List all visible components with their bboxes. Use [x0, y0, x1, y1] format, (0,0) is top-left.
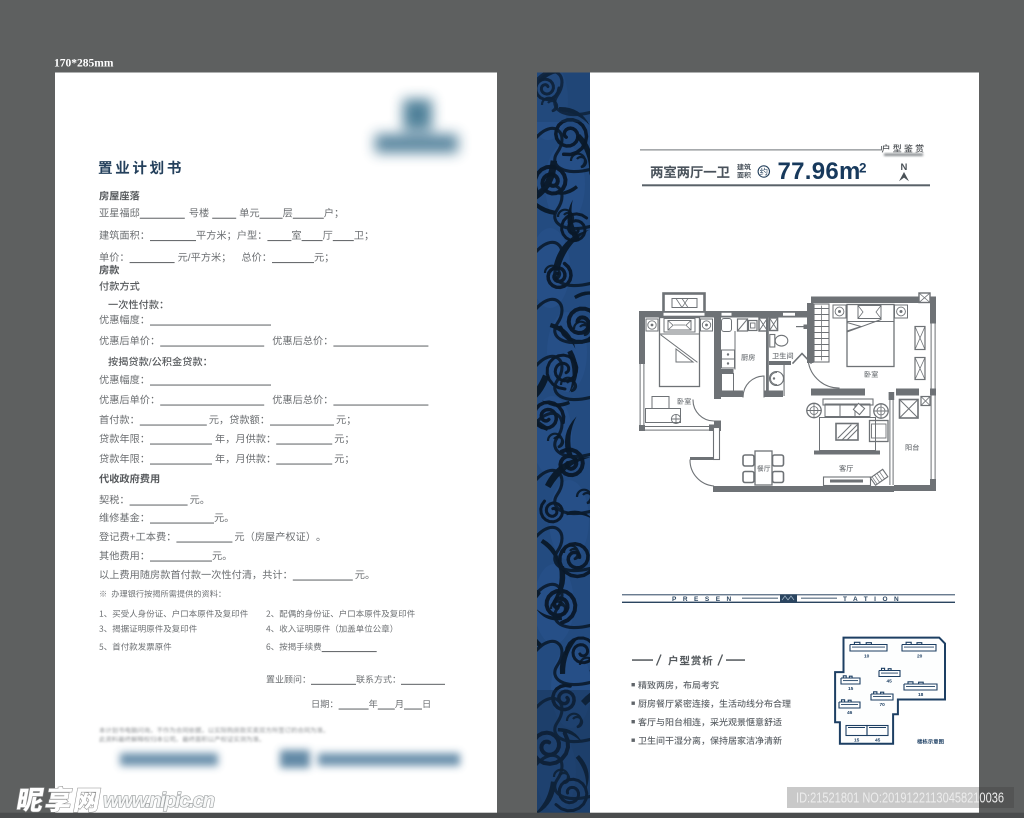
svg-text:/: /	[188, 253, 191, 264]
svg-text:www.nipic.cn: www.nipic.cn	[103, 789, 215, 812]
svg-text:15: 15	[854, 738, 860, 744]
svg-text:N: N	[901, 162, 908, 173]
svg-text:ID:21521801 NO:201912211304582: ID:21521801 NO:20191221130458210036	[796, 791, 1004, 807]
svg-text:70: 70	[880, 702, 886, 708]
svg-text:77.96m: 77.96m	[778, 158, 861, 185]
svg-text:PRESEN: PRESEN	[672, 596, 738, 603]
svg-text:45: 45	[887, 679, 893, 685]
svg-text:20: 20	[917, 654, 923, 660]
svg-text:/: /	[149, 357, 152, 368]
svg-text:45: 45	[875, 738, 881, 744]
svg-text:170*285mm: 170*285mm	[54, 58, 114, 70]
svg-text:2: 2	[859, 161, 867, 176]
svg-text:TATION: TATION	[843, 596, 905, 603]
svg-text:10: 10	[864, 654, 870, 660]
svg-text:15: 15	[848, 686, 854, 692]
svg-text:18: 18	[918, 692, 924, 698]
svg-text:+: +	[130, 532, 136, 543]
svg-text:46: 46	[847, 710, 853, 716]
